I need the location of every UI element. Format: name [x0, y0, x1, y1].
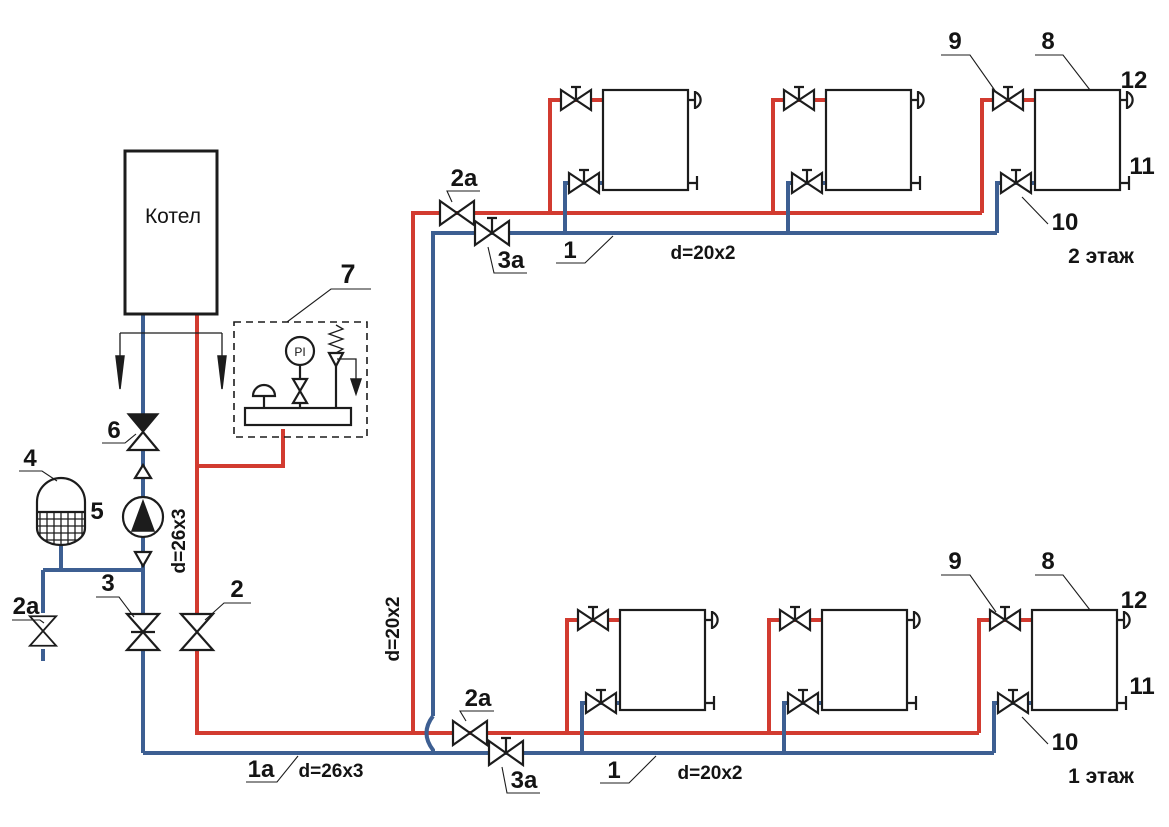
svg-text:2a: 2a — [13, 593, 40, 620]
ref-label-2: 2 — [205, 576, 251, 620]
pipe-size-d20-floor1: d=20x2 — [678, 763, 743, 784]
floor1 — [453, 607, 1130, 765]
floor1-label: 1 этаж — [1068, 765, 1135, 788]
ref-label-3a-floor1: 3a — [502, 767, 540, 794]
ref-label-1a: 1a — [246, 756, 298, 783]
ref-label-9-floor1: 9 — [941, 548, 996, 612]
check-valve-6 — [128, 414, 158, 450]
pipe-size-d26-floor1: d=26x3 — [299, 761, 364, 782]
check-valve-icon — [128, 414, 158, 432]
svg-text:2: 2 — [230, 576, 243, 603]
ref-label-8-floor1: 8 — [1035, 548, 1090, 610]
svg-text:3a: 3a — [511, 767, 538, 794]
check-valve-icon — [128, 432, 158, 450]
heating-schematic: Котел PI — [0, 0, 1169, 827]
safety-group-manifold — [245, 408, 351, 425]
ref-label-11-floor1: 11 — [1129, 673, 1154, 700]
valve-2a-floor2 — [440, 201, 474, 225]
union-icon — [135, 552, 151, 566]
valve-3a-floor1 — [489, 738, 523, 765]
ref-label-9-floor2: 9 — [941, 28, 996, 92]
ref-label-4: 4 — [19, 445, 57, 481]
relief-outlet-arrow-icon — [351, 379, 361, 394]
down-arrow-icon — [116, 356, 124, 389]
valve-2a-floor1 — [453, 721, 487, 745]
floor2 — [440, 87, 1133, 245]
flow-direction-arrows — [116, 333, 226, 389]
ref-label-12-floor1: 12 — [1121, 587, 1148, 614]
air-vent-icon — [253, 385, 275, 396]
down-arrow-icon — [218, 356, 226, 389]
ref-label-10-floor2: 10 — [1022, 197, 1078, 236]
ref-label-2a-floor1: 2a — [460, 685, 494, 721]
svg-text:8: 8 — [1041, 548, 1054, 575]
relief-outlet — [337, 359, 356, 381]
svg-text:4: 4 — [23, 445, 37, 472]
svg-text:8: 8 — [1041, 28, 1054, 55]
ref-label-10-floor1: 10 — [1022, 717, 1078, 756]
boiler-label: Котел — [145, 205, 201, 228]
ref-label-12-floor2: 12 — [1121, 67, 1148, 94]
boiler: Котел — [125, 151, 217, 314]
safety-group: PI — [234, 322, 367, 437]
pipe-size-d20-vertical: d=20x2 — [383, 597, 404, 662]
return-pipe-expansion-branch — [43, 545, 143, 661]
ref-label-1-floor1: 1 — [600, 756, 656, 784]
svg-text:3: 3 — [101, 570, 114, 597]
ref-label-3: 3 — [96, 570, 134, 617]
valve-3a-floor2 — [475, 218, 509, 245]
schematic-canvas: Котел PI — [0, 0, 1169, 827]
svg-text:1a: 1a — [248, 756, 275, 783]
valve-2 — [181, 614, 213, 650]
ref-label-5: 5 — [90, 498, 103, 525]
ref-label-2a-left: 2a — [12, 593, 44, 623]
svg-text:9: 9 — [948, 28, 961, 55]
svg-text:9: 9 — [948, 548, 961, 575]
svg-text:5: 5 — [90, 498, 103, 525]
svg-text:2a: 2a — [451, 165, 478, 192]
ref-label-1-floor2: 1 — [556, 236, 613, 264]
union-icon — [135, 465, 151, 478]
svg-text:10: 10 — [1052, 209, 1079, 236]
return-pipe-floor2-main — [433, 233, 997, 716]
relief-valve-spring — [329, 325, 343, 353]
svg-text:1: 1 — [563, 237, 576, 264]
floor2-label: 2 этаж — [1068, 245, 1135, 268]
ref-label-6: 6 — [102, 417, 136, 444]
boiler-box — [125, 151, 217, 314]
svg-text:1: 1 — [607, 757, 620, 784]
supply-pipe-safety-group-feed — [197, 429, 283, 466]
pipe-size-d26-vertical: d=26x3 — [169, 509, 190, 574]
ref-label-2a-floor2: 2a — [447, 165, 480, 202]
svg-text:7: 7 — [340, 259, 355, 289]
svg-text:6: 6 — [107, 417, 120, 444]
ref-label-7: 7 — [287, 259, 371, 322]
ref-label-11-floor2: 11 — [1129, 153, 1154, 180]
svg-text:10: 10 — [1052, 729, 1079, 756]
svg-text:2a: 2a — [465, 685, 492, 712]
pipe-size-d20-floor2: d=20x2 — [671, 243, 736, 264]
pressure-gauge-label: PI — [294, 345, 305, 359]
ref-label-3a-floor2: 3a — [488, 247, 527, 274]
gauge-valve-icon — [293, 391, 307, 403]
expansion-tank — [37, 478, 85, 546]
valve-2a-left — [30, 616, 56, 646]
svg-text:3a: 3a — [498, 247, 525, 274]
ref-label-8-floor2: 8 — [1035, 28, 1090, 90]
